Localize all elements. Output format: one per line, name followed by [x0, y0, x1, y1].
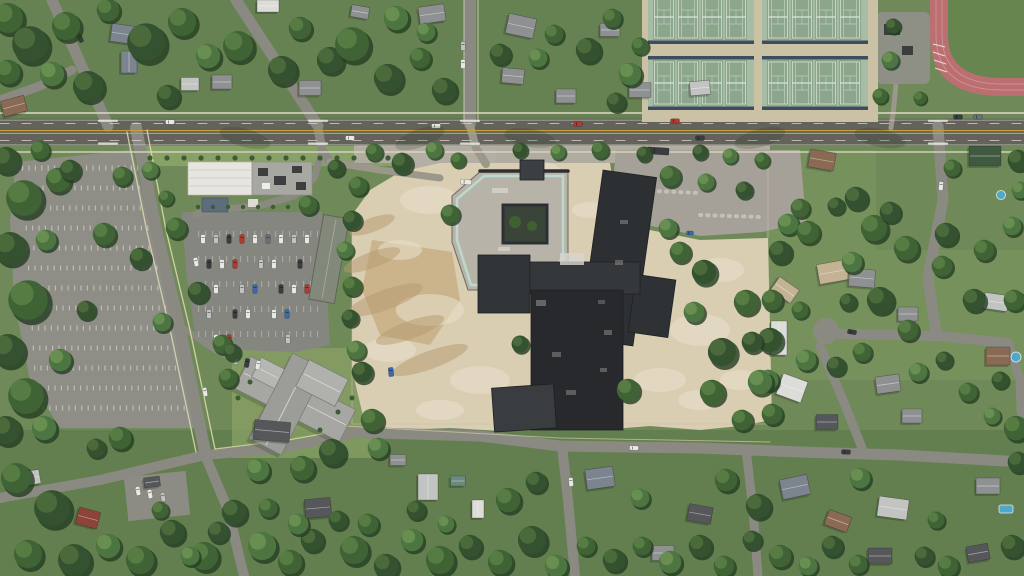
- tree-canopy-highlight: [715, 557, 727, 569]
- courtyard-tree: [509, 216, 521, 228]
- tennis-block-band: [648, 56, 754, 60]
- bush: [226, 205, 230, 209]
- tree-canopy-highlight: [270, 57, 287, 74]
- school-dark-wing: [478, 255, 530, 313]
- tree-canopy-highlight: [491, 45, 503, 57]
- tree-canopy-highlight: [685, 303, 697, 315]
- house: [141, 476, 160, 490]
- tree-canopy-highlight: [289, 515, 301, 527]
- car-body: [461, 60, 466, 69]
- house: [416, 474, 438, 502]
- tree-canopy-highlight: [851, 469, 863, 481]
- car: [292, 285, 297, 294]
- tree-canopy-highlight: [170, 9, 187, 26]
- tree-canopy-highlight: [800, 558, 811, 569]
- tree-canopy-highlight: [131, 249, 143, 261]
- tree-canopy-highlight: [375, 555, 389, 569]
- car-body: [227, 235, 232, 244]
- bush: [351, 155, 356, 160]
- car-body: [292, 235, 297, 244]
- car: [253, 285, 258, 294]
- shrub: [248, 380, 253, 385]
- tree-canopy-highlight: [744, 532, 755, 543]
- car-body: [574, 122, 583, 127]
- bush: [181, 155, 186, 160]
- house: [554, 89, 576, 105]
- car-body: [207, 260, 212, 269]
- tree-canopy-highlight: [1004, 218, 1015, 229]
- bush: [196, 205, 200, 209]
- tree-canopy-highlight: [660, 220, 671, 231]
- house: [974, 478, 1000, 496]
- car: [266, 235, 271, 244]
- car-windshield: [194, 260, 197, 261]
- tree-canopy-highlight: [220, 370, 231, 381]
- car-windshield: [246, 361, 249, 362]
- tree-canopy-highlight: [343, 310, 353, 320]
- tree-canopy-highlight: [527, 473, 539, 485]
- tree-canopy-highlight: [8, 182, 29, 203]
- roof-debris: [620, 220, 628, 224]
- rooftop-unit: [296, 182, 306, 190]
- car-body: [214, 235, 219, 244]
- tree-canopy-highlight: [98, 0, 111, 13]
- tree-canopy-highlight: [369, 439, 381, 451]
- aerial-photo: aerial-view-demolition-site: [0, 0, 1024, 576]
- pavilion-structure: [902, 46, 913, 55]
- car-body: [214, 285, 219, 294]
- car-body: [279, 235, 284, 244]
- car-body: [460, 179, 471, 185]
- tree-canopy-highlight: [411, 49, 423, 61]
- car: [214, 285, 219, 294]
- car-body: [253, 235, 258, 244]
- car: [461, 60, 466, 69]
- shrub: [318, 428, 323, 433]
- tree-canopy-highlight: [32, 142, 43, 153]
- car-body: [346, 136, 355, 141]
- tree-canopy-highlight: [50, 350, 63, 363]
- tree-canopy-highlight: [418, 24, 429, 35]
- tree-canopy-highlight: [75, 72, 93, 90]
- car-body: [220, 260, 225, 269]
- car-body: [207, 310, 212, 319]
- house: [499, 67, 524, 86]
- car-body: [259, 260, 264, 269]
- car: [207, 260, 212, 269]
- tennis-block-band: [762, 56, 868, 60]
- tree-canopy-highlight: [11, 282, 34, 305]
- house: [984, 347, 1010, 367]
- tree-canopy-highlight: [899, 321, 911, 333]
- tree-canopy-highlight: [376, 65, 393, 82]
- house: [302, 497, 332, 520]
- aerial-scene-svg: [0, 0, 1024, 576]
- rooftop-unit: [262, 183, 270, 189]
- tree-canopy-highlight: [88, 440, 99, 451]
- roof-debris: [600, 368, 607, 372]
- car-body: [461, 42, 466, 51]
- dirt-blotch: [634, 368, 686, 392]
- bush: [286, 205, 290, 209]
- car: [259, 260, 264, 269]
- car: [305, 235, 310, 244]
- tree-canopy-highlight: [10, 380, 31, 401]
- roof-debris: [498, 247, 510, 251]
- tree-canopy-highlight: [604, 10, 615, 21]
- car-body: [671, 119, 680, 124]
- tree-canopy-highlight: [47, 169, 61, 183]
- car: [207, 310, 212, 319]
- tree-canopy-highlight: [348, 342, 359, 353]
- tree-canopy-highlight: [929, 512, 939, 522]
- courtyard-tree: [527, 221, 537, 231]
- tree-canopy-highlight: [1009, 453, 1021, 465]
- car-body: [629, 446, 638, 451]
- car-windshield: [850, 330, 851, 333]
- roof-debris: [598, 300, 605, 304]
- tree-canopy-highlight: [248, 460, 261, 473]
- tree-canopy-highlight: [699, 174, 709, 184]
- tree-canopy-highlight: [197, 45, 211, 59]
- tree-canopy-highlight: [344, 278, 355, 289]
- bush: [164, 155, 169, 160]
- tree-canopy-highlight: [608, 94, 619, 105]
- swimming-pool: [999, 505, 1013, 513]
- tree-canopy-highlight: [960, 384, 971, 395]
- tree-canopy-highlight: [632, 490, 643, 501]
- house: [687, 80, 710, 98]
- tree-canopy-highlight: [604, 550, 617, 563]
- school-dark-wing: [492, 384, 557, 432]
- tree-canopy-highlight: [671, 243, 683, 255]
- tree-canopy-highlight: [129, 25, 151, 47]
- tree-canopy-highlight: [36, 492, 57, 513]
- roof-debris: [552, 352, 561, 357]
- car: [279, 235, 284, 244]
- tree-canopy-highlight: [1013, 182, 1023, 192]
- tree-canopy-highlight: [143, 162, 153, 172]
- tree-canopy-highlight: [895, 237, 909, 251]
- house: [210, 75, 232, 91]
- car: [292, 235, 297, 244]
- office-building-white-roof: [188, 162, 252, 195]
- tree-canopy-highlight: [279, 551, 293, 565]
- car: [166, 120, 175, 125]
- car-body: [272, 310, 277, 319]
- tree-canopy-highlight: [916, 548, 927, 559]
- tree-canopy-highlight: [693, 261, 707, 275]
- tree-canopy-highlight: [362, 410, 375, 423]
- tree-canopy-highlight: [161, 521, 175, 535]
- house: [251, 419, 291, 444]
- car: [286, 335, 291, 344]
- tree-canopy-highlight: [937, 352, 947, 362]
- tree-canopy-highlight: [577, 39, 591, 53]
- tree-canopy-highlight: [828, 358, 839, 369]
- car-body: [240, 285, 245, 294]
- car-body: [974, 115, 983, 120]
- tree-canopy-highlight: [854, 344, 865, 355]
- rooftop-unit: [274, 176, 286, 185]
- car-body: [388, 367, 394, 376]
- tree-canopy-highlight: [975, 241, 987, 253]
- car-body: [285, 310, 290, 319]
- tree-canopy-highlight: [385, 7, 399, 21]
- car: [285, 310, 290, 319]
- car-body: [233, 260, 238, 269]
- bush: [198, 155, 203, 160]
- tree-canopy-highlight: [578, 538, 589, 549]
- car-body: [272, 260, 277, 269]
- tree-canopy-highlight: [154, 314, 165, 325]
- car-windshield: [148, 492, 151, 493]
- car: [246, 310, 251, 319]
- tennis-block-band: [762, 41, 868, 45]
- tree-canopy-highlight: [14, 28, 35, 49]
- tree-canopy-highlight: [427, 142, 437, 152]
- bush: [385, 155, 390, 160]
- tennis-block-band: [648, 41, 754, 45]
- bush: [249, 155, 254, 160]
- car: [298, 260, 303, 269]
- tree-canopy-highlight: [690, 536, 703, 549]
- rooftop-unit: [292, 166, 302, 173]
- dirt-blotch: [416, 400, 464, 420]
- bush: [256, 205, 260, 209]
- tree-canopy-highlight: [747, 495, 761, 509]
- tree-canopy-highlight: [320, 440, 335, 455]
- entrance-canopy: [202, 198, 228, 212]
- bush: [300, 155, 305, 160]
- roof-debris: [492, 188, 508, 193]
- tree-canopy-highlight: [733, 411, 745, 423]
- car: [305, 285, 310, 294]
- car: [233, 310, 238, 319]
- bush: [211, 205, 215, 209]
- tree-canopy-highlight: [367, 144, 377, 154]
- house: [900, 409, 922, 425]
- roof-debris: [604, 330, 612, 335]
- tree-canopy-highlight: [209, 523, 221, 535]
- tree-canopy-highlight: [945, 160, 955, 170]
- tree-canopy-highlight: [290, 18, 303, 31]
- tree-canopy-highlight: [737, 182, 747, 192]
- tree-canopy-highlight: [850, 556, 861, 567]
- tree-canopy-highlight: [291, 457, 305, 471]
- swimming-pool: [997, 191, 1006, 200]
- tree-canopy-highlight: [763, 405, 775, 417]
- tree-canopy-highlight: [792, 200, 803, 211]
- bush: [241, 205, 245, 209]
- tree-canopy-highlight: [546, 556, 559, 569]
- tree-canopy-highlight: [393, 154, 405, 166]
- tree-canopy-highlight: [593, 142, 603, 152]
- car-body: [286, 335, 291, 344]
- car: [954, 115, 963, 120]
- swimming-pool: [1011, 352, 1021, 362]
- tree-canopy-highlight: [300, 197, 311, 208]
- school-dark-wing: [526, 262, 640, 294]
- roof-debris: [615, 260, 623, 265]
- tree-canopy-highlight: [338, 242, 348, 252]
- tree-canopy-highlight: [620, 64, 633, 77]
- tree-canopy-highlight: [433, 79, 447, 93]
- car-body: [298, 260, 303, 269]
- roof-debris: [536, 300, 546, 306]
- school-dark-wing: [520, 160, 544, 180]
- tree-canopy-highlight: [520, 527, 537, 544]
- tree-canopy-highlight: [182, 548, 193, 559]
- house: [416, 4, 446, 27]
- tree-canopy-highlight: [546, 26, 557, 37]
- bush: [317, 155, 322, 160]
- tree-canopy-highlight: [797, 351, 809, 363]
- tree-canopy-highlight: [214, 336, 225, 347]
- tree-canopy-highlight: [823, 537, 835, 549]
- shrub: [350, 396, 355, 401]
- car: [696, 136, 705, 141]
- car: [201, 235, 206, 244]
- tree-canopy-highlight: [359, 515, 371, 527]
- tree-canopy-highlight: [661, 167, 673, 179]
- bush: [215, 155, 220, 160]
- car: [253, 235, 258, 244]
- tree-canopy-highlight: [1005, 291, 1017, 303]
- tree-canopy-highlight: [716, 470, 729, 483]
- tree-canopy-highlight: [16, 541, 33, 558]
- tree-canopy-highlight: [755, 153, 764, 162]
- tree-canopy-highlight: [735, 291, 749, 305]
- tree-canopy-highlight: [551, 145, 560, 154]
- roof-debris: [560, 253, 584, 265]
- tree-canopy-highlight: [97, 535, 111, 549]
- tree-canopy-highlight: [793, 302, 803, 312]
- car: [841, 450, 850, 455]
- tree-canopy-highlight: [37, 231, 49, 243]
- tree-canopy-highlight: [442, 206, 453, 217]
- tree-canopy-highlight: [402, 530, 415, 543]
- tree-canopy-highlight: [3, 464, 21, 482]
- tree-canopy-highlight: [693, 145, 702, 154]
- house: [583, 466, 616, 492]
- car: [272, 260, 277, 269]
- car: [233, 260, 238, 269]
- tree-canopy-highlight: [439, 516, 449, 526]
- tree-canopy-highlight: [167, 219, 179, 231]
- car-body: [568, 477, 573, 486]
- car-body: [954, 115, 963, 120]
- tree-canopy-highlight: [530, 50, 541, 61]
- car: [346, 136, 355, 141]
- tree-canopy-highlight: [886, 19, 895, 28]
- car-body: [233, 310, 238, 319]
- car: [388, 367, 394, 376]
- tree-canopy-highlight: [843, 253, 855, 265]
- tree-canopy-highlight: [350, 178, 361, 189]
- car-body: [253, 285, 258, 294]
- house: [814, 415, 838, 432]
- tree-canopy-highlight: [841, 294, 851, 304]
- tree-canopy-highlight: [1002, 536, 1015, 549]
- tree-canopy-highlight: [158, 86, 171, 99]
- car: [272, 310, 277, 319]
- house: [866, 548, 892, 566]
- car: [240, 235, 245, 244]
- tree-canopy-highlight: [153, 502, 163, 512]
- tree-canopy-highlight: [344, 212, 355, 223]
- tree-canopy-highlight: [1005, 417, 1019, 431]
- car: [461, 42, 466, 51]
- tree-canopy-highlight: [110, 428, 123, 441]
- car-body: [166, 120, 175, 125]
- tree-canopy-highlight: [260, 500, 271, 511]
- car: [974, 115, 983, 120]
- house: [873, 374, 901, 396]
- tree-canopy-highlight: [94, 224, 107, 237]
- tree-canopy-highlight: [250, 533, 267, 550]
- tree-canopy-highlight: [54, 13, 71, 30]
- tree-canopy-highlight: [60, 546, 79, 565]
- tree-canopy-highlight: [225, 32, 243, 50]
- tree-canopy-highlight: [964, 290, 977, 303]
- car: [938, 181, 943, 190]
- tree-canopy-highlight: [33, 417, 47, 431]
- tree-canopy-highlight: [883, 52, 893, 62]
- car-windshield: [161, 495, 164, 496]
- car: [671, 119, 680, 124]
- tree-canopy-highlight: [460, 536, 473, 549]
- house: [297, 81, 321, 98]
- tree-canopy-highlight: [634, 538, 645, 549]
- tree-canopy-highlight: [701, 381, 715, 395]
- tree-canopy-highlight: [342, 537, 359, 554]
- tree-canopy-highlight: [128, 547, 145, 564]
- car-body: [696, 136, 705, 141]
- tree-canopy-highlight: [78, 302, 89, 313]
- shrub: [236, 396, 241, 401]
- tree-canopy-highlight: [114, 168, 125, 179]
- tree-canopy-highlight: [408, 502, 419, 513]
- tree-canopy-highlight: [881, 203, 893, 215]
- car-body: [246, 310, 251, 319]
- car-body: [279, 285, 284, 294]
- tree-canopy-highlight: [159, 191, 168, 200]
- house: [874, 496, 909, 522]
- tree-canopy-highlight: [910, 364, 921, 375]
- car-body: [201, 235, 206, 244]
- tree-canopy-highlight: [353, 363, 365, 375]
- bush: [147, 155, 152, 160]
- office-parking-lot: [182, 212, 330, 352]
- car: [227, 235, 232, 244]
- tree-canopy-highlight: [225, 344, 235, 354]
- house: [179, 78, 199, 93]
- car: [279, 285, 284, 294]
- car: [629, 446, 638, 451]
- tree-canopy-highlight: [749, 371, 763, 385]
- tree-canopy-highlight: [337, 29, 357, 49]
- tree-canopy-highlight: [798, 222, 811, 235]
- tree-canopy-highlight: [61, 161, 73, 173]
- rooftop-unit: [258, 168, 268, 176]
- car: [574, 122, 583, 127]
- tree-canopy-highlight: [743, 333, 755, 345]
- tree-canopy-highlight: [993, 372, 1003, 382]
- car-body: [841, 450, 850, 455]
- car-body: [292, 285, 297, 294]
- road-marking: [700, 215, 762, 217]
